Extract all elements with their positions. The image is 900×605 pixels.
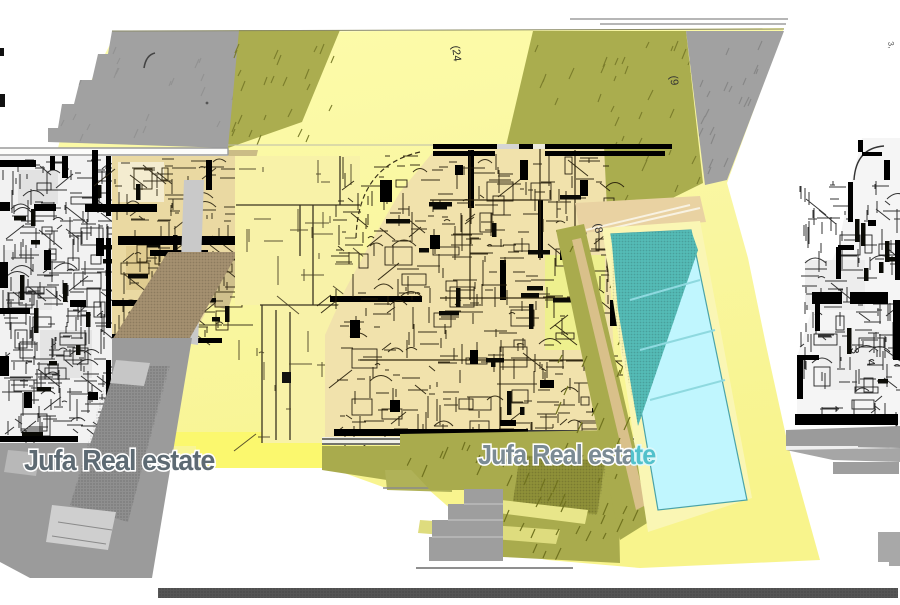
svg-text:4: 4 bbox=[864, 359, 876, 366]
svg-text:Jufa Real estate: Jufa Real estate bbox=[478, 439, 656, 471]
svg-text:(24: (24 bbox=[449, 45, 463, 62]
svg-text:(8: (8 bbox=[591, 222, 605, 234]
svg-text:Jufa Real estate: Jufa Real estate bbox=[24, 444, 215, 476]
svg-text:3: 3 bbox=[848, 347, 860, 354]
svg-text:(9: (9 bbox=[667, 75, 680, 86]
